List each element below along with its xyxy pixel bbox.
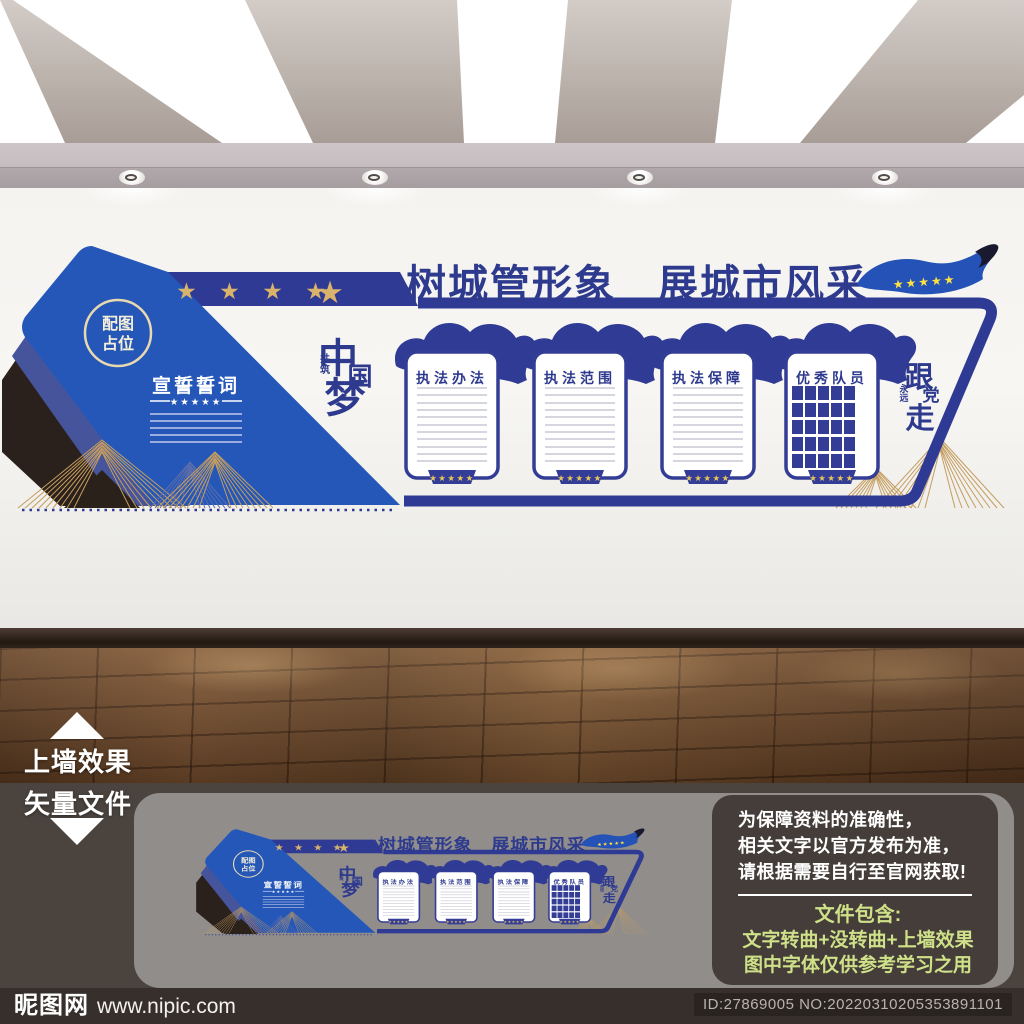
ceiling-beams [0,0,1024,143]
notice-line: 请根据需要自行至官网获取! [738,859,978,885]
package-line: 文字转曲+没转曲+上墙效果 [738,928,978,953]
spotlight-icon [627,170,653,185]
vector-file-label: 矢量文件 [0,784,156,821]
site-mark: 昵图网www.nipic.com [14,988,236,1024]
ceiling-beam [0,0,222,143]
ceiling-beam [245,0,464,143]
notice-panel: 为保障资料的准确性， 相关文字以官方发布为准， 请根据需要自行至官网获取! 文件… [712,795,998,985]
arrow-up-icon [50,712,104,739]
nipic-url: www.nipic.com [97,995,236,1018]
ceiling-beam [800,0,1024,143]
soffit-lower [0,167,1024,188]
baseboard [0,628,1024,648]
notice-line: 相关文字以官方发布为准， [738,833,978,859]
ceiling [0,0,1024,143]
mockup-scene: 为保障资料的准确性， 相关文字以官方发布为准， 请根据需要自行至官网获取! 文件… [0,0,1024,1024]
notice-divider [738,894,972,896]
package-line: 图中字体仅供参考学习之用 [738,953,978,978]
package-title: 文件包含: [738,903,978,928]
notice-line: 为保障资料的准确性， [738,807,978,833]
image-id-badge: ID:27869005 NO:20220310205353891101 [694,993,1012,1016]
nipic-logo: 昵图网 [14,992,89,1019]
arrow-down-icon [50,818,104,845]
spotlight-icon [872,170,898,185]
wall [0,188,1024,628]
wall-effect-label: 上墙效果 [0,742,156,779]
watermark-bar: 昵图网www.nipic.com ID:27869005 NO:20220310… [0,988,1024,1024]
ceiling-beam [555,0,732,143]
spotlight-icon [119,170,145,185]
spotlight-icon [362,170,388,185]
soffit-upper [0,143,1024,167]
